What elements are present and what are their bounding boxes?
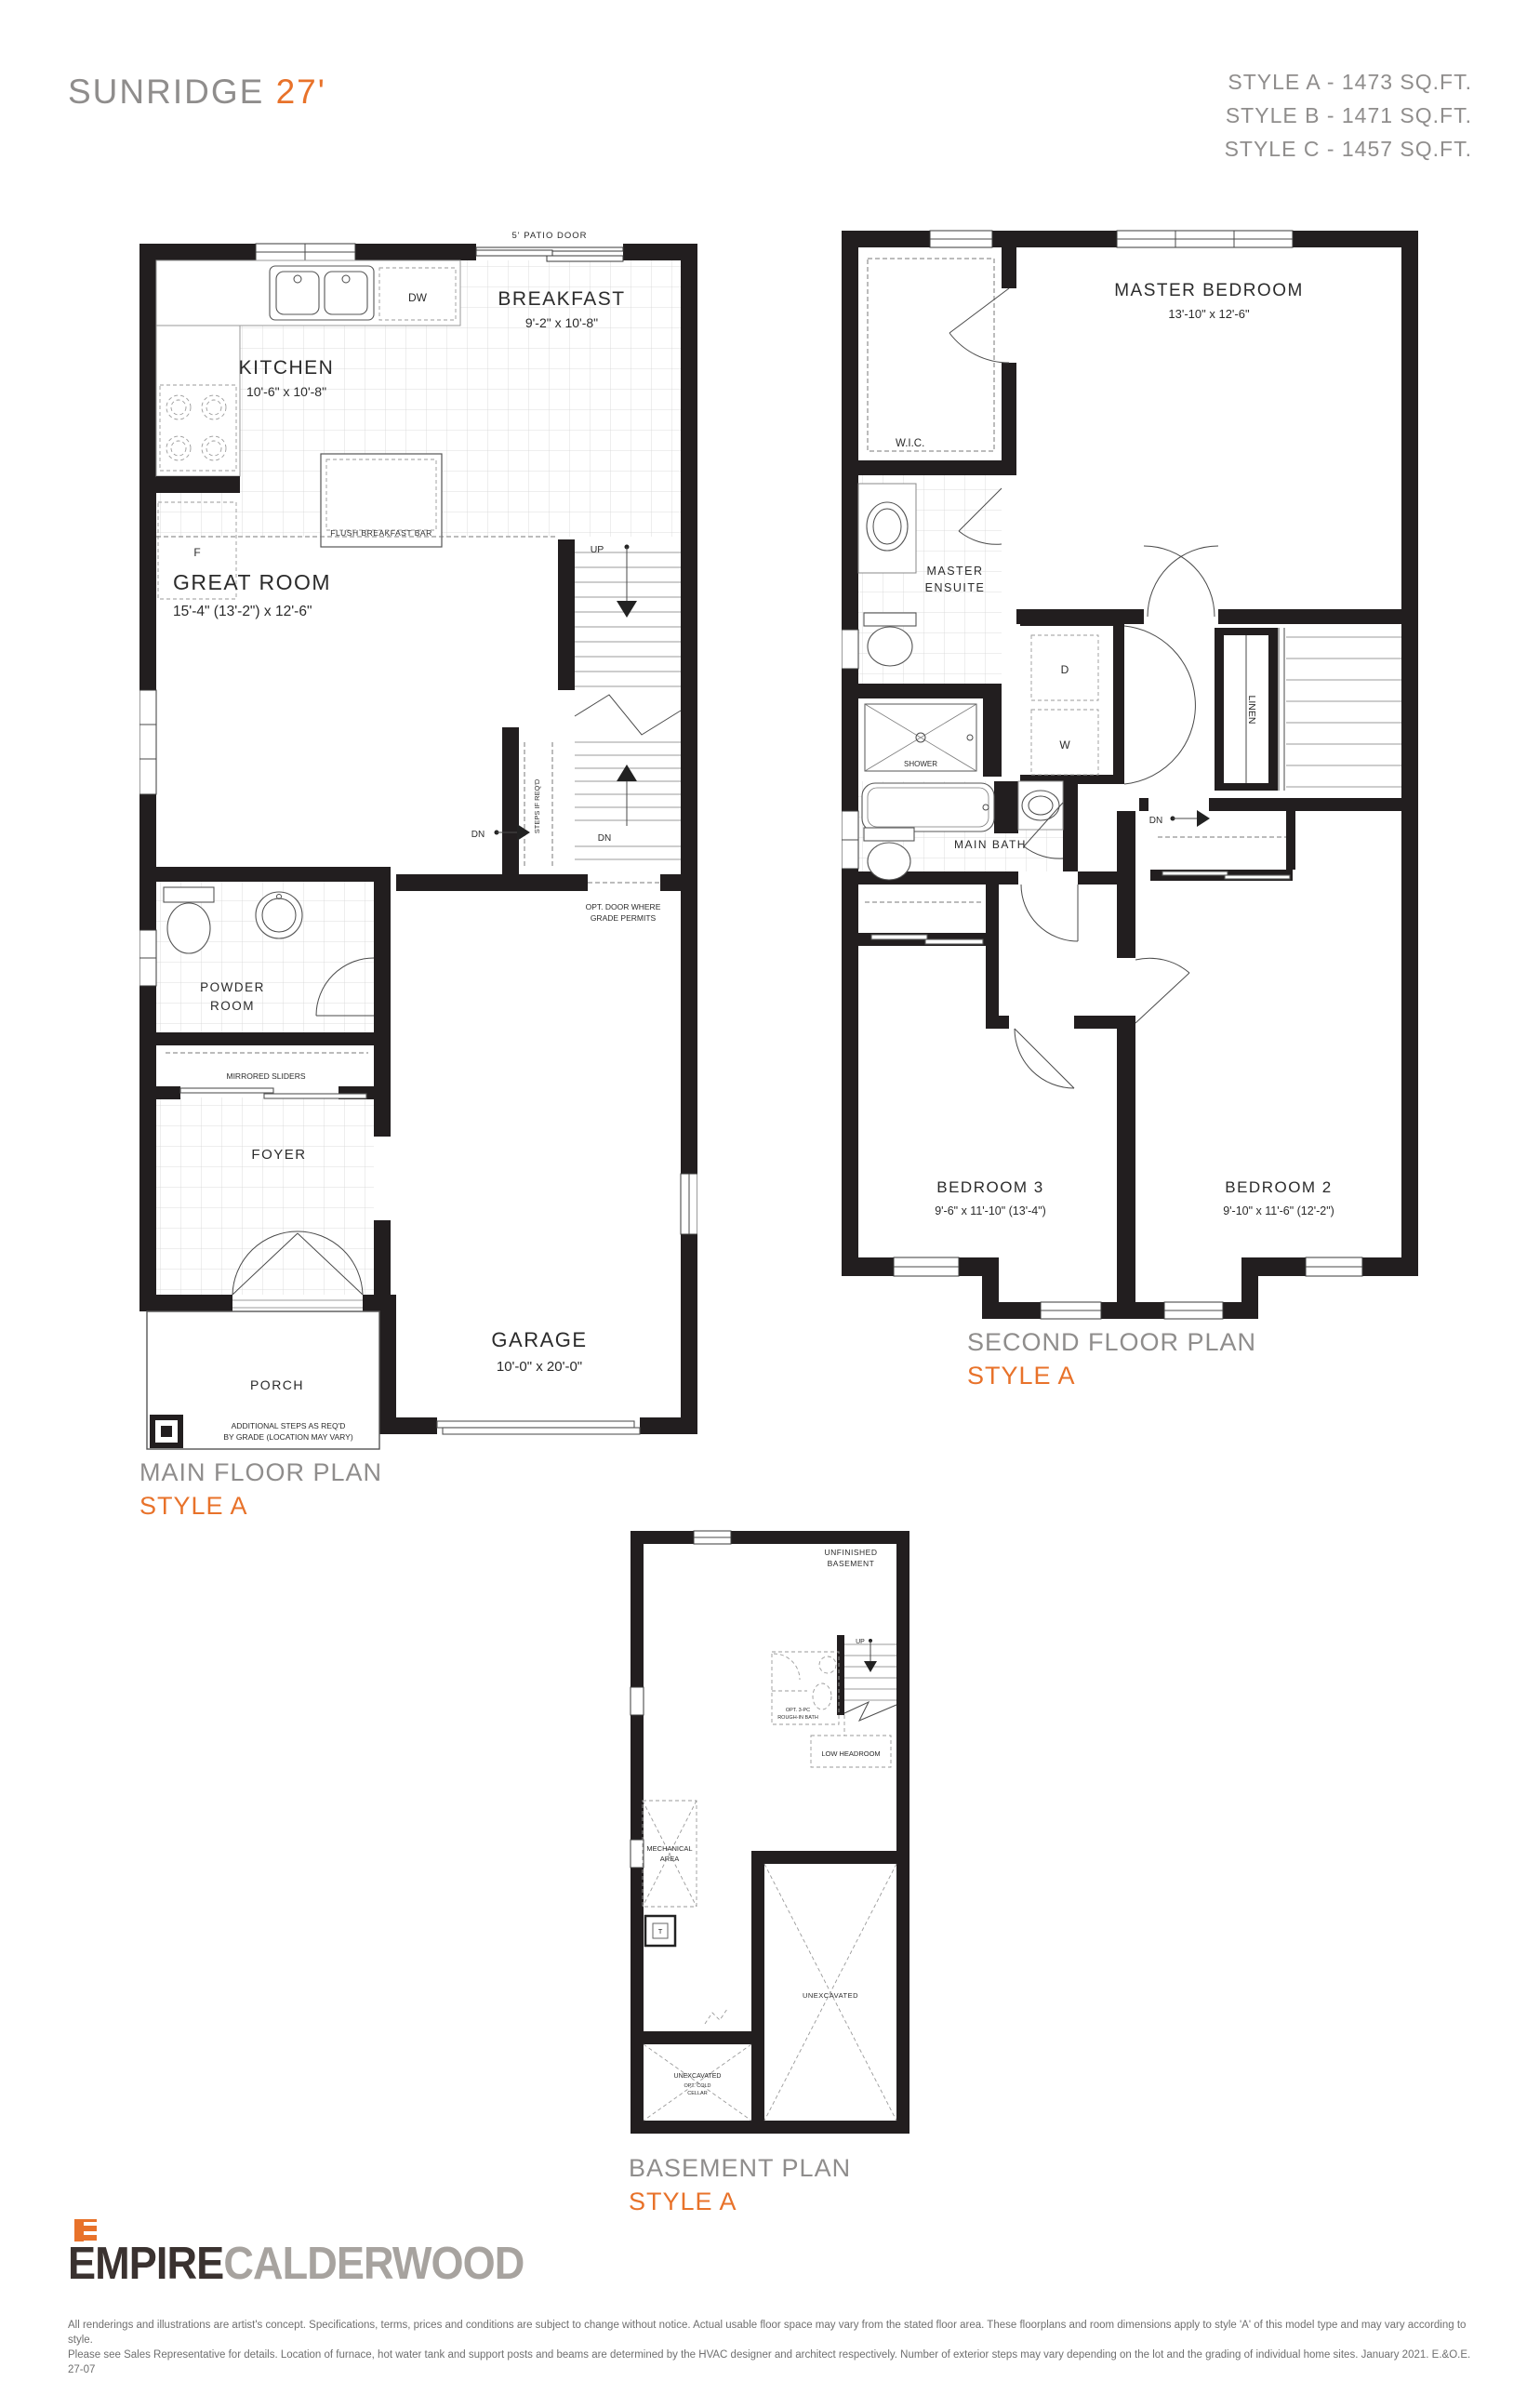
breakfast-label: BREAKFAST bbox=[498, 288, 625, 310]
main-floor-plan: 5' PATIO DOOR bbox=[139, 225, 697, 1462]
steps-note-1: ADDITIONAL STEPS AS REQ'D bbox=[232, 1421, 346, 1430]
bedroom2-dims: 9'-10" x 11'-6" (12'-2") bbox=[1223, 1204, 1334, 1217]
main-bath-label: MAIN BATH bbox=[954, 838, 1027, 851]
bathtub bbox=[862, 783, 994, 831]
master-bedroom-label: MASTER BEDROOM bbox=[1114, 281, 1304, 300]
basement-style: STYLE A bbox=[629, 2188, 737, 2216]
model-name: SUNRIDGE bbox=[68, 73, 264, 111]
porch-label: PORCH bbox=[250, 1377, 304, 1392]
island-label: FLUSH BREAKFAST BAR bbox=[330, 528, 431, 538]
garage-dims: 10'-0" x 20'-0" bbox=[497, 1359, 582, 1375]
second-floor-walls bbox=[842, 231, 1418, 1319]
washer-label: W bbox=[1059, 738, 1070, 752]
rough-in-label-1: OPT. 3-PC bbox=[786, 1708, 810, 1713]
second-floor-style: STYLE A bbox=[967, 1362, 1076, 1390]
low-headroom-label: LOW HEADROOM bbox=[821, 1749, 880, 1758]
unexcavated-small-label: UNEXCAVATED bbox=[674, 2073, 722, 2080]
mechanical-area-zone bbox=[643, 1801, 697, 1907]
basement-dn-label: DN bbox=[471, 830, 485, 840]
second-floor-stairs bbox=[1171, 628, 1402, 827]
mirrored-sliders-label: MIRRORED SLIDERS bbox=[226, 1071, 305, 1081]
wic-label: W.I.C. bbox=[896, 438, 924, 449]
dw-label: DW bbox=[408, 291, 428, 304]
brand-calderwood: CALDERWOOD bbox=[223, 2243, 524, 2284]
bedroom3-dims: 9'-6" x 11'-10" (13'-4") bbox=[935, 1204, 1046, 1217]
dn-label-2f: DN bbox=[1149, 816, 1162, 826]
toilet-bowl bbox=[167, 903, 210, 953]
garage-door bbox=[437, 883, 660, 1434]
unexcavated-main-label: UNEXCAVATED bbox=[803, 1991, 858, 2000]
dryer-label: D bbox=[1061, 663, 1069, 676]
basement-stairs bbox=[844, 1639, 896, 1721]
steps-if-reqd-label: STEPS IF REQ'D bbox=[533, 778, 541, 833]
basement-windows bbox=[631, 1531, 731, 1868]
style-c-sqft: STYLE C - 1457 SQ.FT. bbox=[1225, 132, 1472, 166]
unexcavated-zones bbox=[644, 1864, 896, 2121]
foyer-label: FOYER bbox=[251, 1147, 306, 1163]
linen-label: LINEN bbox=[1246, 696, 1257, 725]
bedroom2-label: BEDROOM 2 bbox=[1225, 1178, 1333, 1196]
style-a-sqft: STYLE A - 1473 SQ.FT. bbox=[1225, 65, 1472, 99]
up-label: UP bbox=[591, 544, 604, 555]
great-room-dims: 15'-4" (13'-2") x 12'-6" bbox=[173, 604, 312, 619]
cold-cellar-label-2: CELLAR bbox=[687, 2091, 707, 2096]
tank-label: T bbox=[658, 1927, 663, 1935]
opt-door-label-2: GRADE PERMITS bbox=[591, 913, 657, 923]
basement-plan: UNFINISHED BASEMENT UP OPT. 3-PC ROUGH-I… bbox=[625, 1514, 915, 2150]
steps-note-2: BY GRADE (LOCATION MAY VARY) bbox=[223, 1432, 353, 1442]
kitchen-dims: 10'-6" x 10'-8" bbox=[246, 384, 326, 399]
brand-empire: EMPIRE bbox=[68, 2243, 223, 2284]
shower-label: SHOWER bbox=[904, 760, 937, 768]
mechanical-label-2: AREA bbox=[660, 1855, 679, 1863]
bedroom3-label: BEDROOM 3 bbox=[936, 1178, 1044, 1196]
disclaimer-line-2: Please see Sales Representative for deta… bbox=[68, 2348, 1478, 2377]
main-floor-style: STYLE A bbox=[139, 1492, 248, 1521]
ensuite-label-2: ENSUITE bbox=[925, 581, 986, 594]
wic-closet bbox=[868, 259, 1009, 451]
fridge-label: F bbox=[193, 546, 200, 559]
lot-width: 27' bbox=[276, 73, 326, 111]
floorplan-sheet: { "header": { "title": "SUNRIDGE", "lot"… bbox=[0, 0, 1540, 2381]
style-sqft-list: STYLE A - 1473 SQ.FT. STYLE B - 1471 SQ.… bbox=[1225, 65, 1472, 166]
opt-door-label-1: OPT. DOOR WHERE bbox=[586, 902, 661, 911]
unfinished-basement-label-1: UNFINISHED bbox=[825, 1548, 878, 1557]
disclaimer-line-1: All renderings and illustrations are art… bbox=[68, 2318, 1478, 2348]
legal-disclaimer: All renderings and illustrations are art… bbox=[68, 2318, 1478, 2377]
main-floor-caption: MAIN FLOOR PLAN bbox=[139, 1458, 382, 1487]
garage-label: GARAGE bbox=[491, 1328, 587, 1351]
style-b-sqft: STYLE B - 1471 SQ.FT. bbox=[1225, 99, 1472, 132]
opt-rough-in-bath bbox=[772, 1652, 839, 1724]
dn-label: DN bbox=[598, 833, 611, 844]
master-bedroom-dims: 13'-10" x 12'-6" bbox=[1168, 307, 1250, 321]
ensuite-label-1: MASTER bbox=[926, 565, 983, 578]
patio-door-label: 5' PATIO DOOR bbox=[512, 231, 588, 241]
main-stairs bbox=[495, 545, 682, 868]
second-floor-plan: MASTER BEDROOM 13'-10" x 12'-6" W.I.C. M… bbox=[842, 223, 1418, 1321]
cold-cellar-label-1: OPT. COLD bbox=[684, 2083, 710, 2089]
brand-logo: EMPIRE CALDERWOOD bbox=[68, 2219, 564, 2284]
toilet-tank bbox=[164, 887, 214, 902]
mechanical-label-1: MECHANICAL bbox=[646, 1844, 692, 1853]
master-bedroom-door bbox=[1144, 546, 1218, 617]
basement-caption: BASEMENT PLAN bbox=[629, 2154, 851, 2183]
page-title: SUNRIDGE 27' bbox=[68, 73, 326, 112]
basement-walls bbox=[631, 1531, 909, 2134]
powder-room-label-2: ROOM bbox=[210, 999, 255, 1013]
up-label-bsmt: UP bbox=[856, 1639, 865, 1645]
kitchen-label: KITCHEN bbox=[239, 357, 335, 379]
breakfast-dims: 9'-2" x 10'-8" bbox=[525, 315, 598, 330]
rough-in-label-2: ROUGH-IN BATH bbox=[777, 1715, 818, 1721]
unfinished-basement-label-2: BASEMENT bbox=[828, 1559, 875, 1568]
second-floor-caption: SECOND FLOOR PLAN bbox=[967, 1328, 1256, 1357]
powder-room-label-1: POWDER bbox=[200, 980, 265, 994]
great-room-label: GREAT ROOM bbox=[173, 570, 331, 594]
low-headroom-zone bbox=[811, 1715, 891, 1767]
